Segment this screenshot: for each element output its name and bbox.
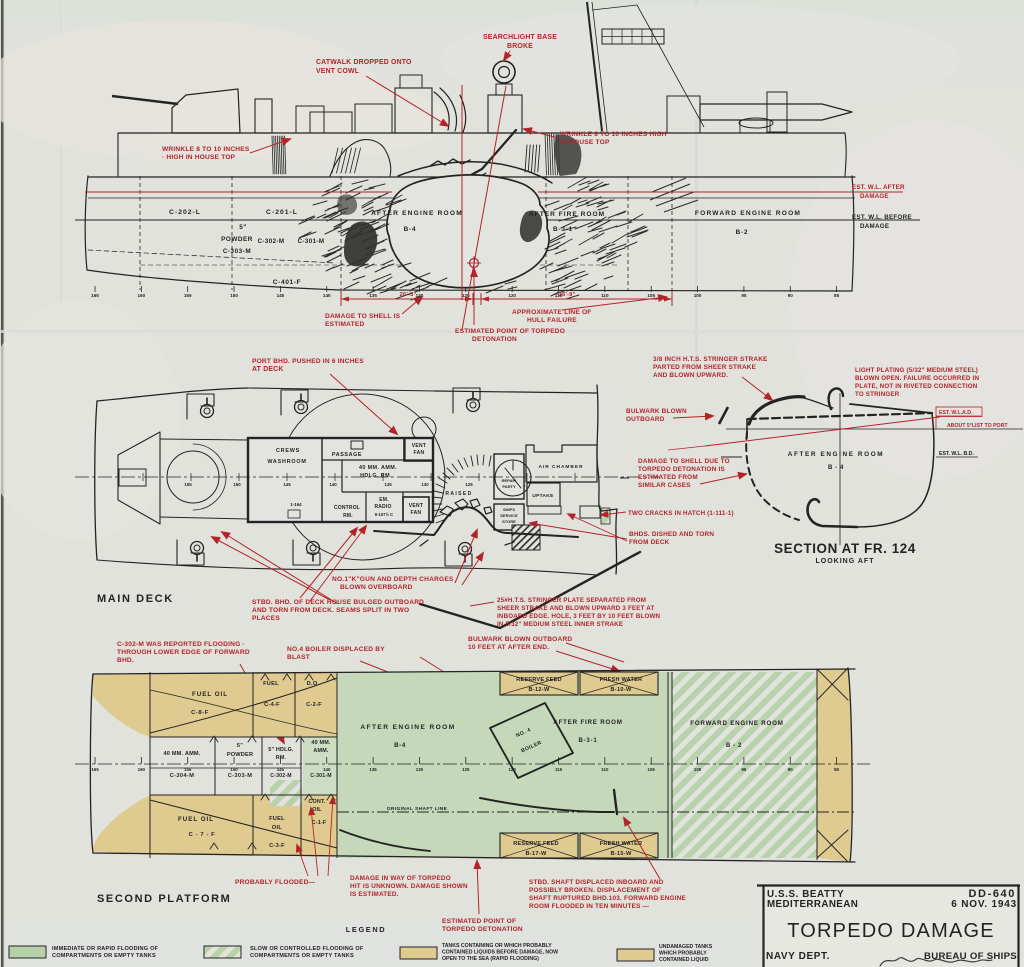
svg-text:NO.4 BOILER DISPLACED BY: NO.4 BOILER DISPLACED BY: [287, 646, 385, 653]
svg-text:120: 120: [508, 293, 516, 298]
svg-text:RM.: RM.: [343, 513, 353, 519]
svg-text:AND TORN FROM DECK. SEAMS SPLI: AND TORN FROM DECK. SEAMS SPLIT IN TWO: [252, 607, 409, 614]
svg-text:PLACES: PLACES: [252, 615, 280, 622]
svg-text:FUEL OIL: FUEL OIL: [192, 691, 228, 698]
svg-text:135: 135: [369, 767, 377, 772]
svg-text:ABOUT 5°LIST TO PORT: ABOUT 5°LIST TO PORT: [947, 423, 1008, 429]
svg-text:SLOW OR CONTROLLED FLOODING OF: SLOW OR CONTROLLED FLOODING OF: [250, 946, 364, 952]
svg-text:POWDER: POWDER: [227, 752, 253, 758]
svg-text:VENT: VENT: [412, 443, 427, 449]
svg-text:ROOM FLOODED IN TEN MINUTES —: ROOM FLOODED IN TEN MINUTES —: [529, 903, 650, 910]
svg-text:130: 130: [416, 767, 424, 772]
svg-text:PROBABLY FLOODED—: PROBABLY FLOODED—: [235, 879, 316, 886]
svg-text:B - 4: B - 4: [828, 465, 844, 471]
svg-text:REPAIR: REPAIR: [502, 478, 517, 483]
svg-text:125: 125: [462, 767, 470, 772]
svg-text:105: 105: [647, 293, 655, 298]
svg-text:IS ESTIMATED.: IS ESTIMATED.: [350, 891, 399, 898]
svg-text:POWDER: POWDER: [221, 236, 253, 243]
svg-text:TO STRINGER: TO STRINGER: [855, 391, 900, 398]
svg-text:RESERVE FEED: RESERVE FEED: [513, 841, 559, 847]
svg-text:B-4: B-4: [394, 742, 406, 749]
svg-text:SEARCHLIGHT BASE: SEARCHLIGHT BASE: [483, 34, 557, 41]
svg-text:BHDS. DISHED AND TORN: BHDS. DISHED AND TORN: [629, 531, 714, 538]
svg-text:85: 85: [834, 767, 839, 772]
svg-text:STBD. BHD. OF DECK HOUSE BULGE: STBD. BHD. OF DECK HOUSE BULGED OUTBOARD: [252, 599, 424, 606]
svg-text:165: 165: [91, 767, 99, 772]
svg-text:145: 145: [283, 482, 291, 487]
svg-text:IN HOUSE TOP: IN HOUSE TOP: [560, 139, 610, 146]
svg-text:FRESH WATER: FRESH WATER: [600, 841, 643, 847]
svg-text:SERVICE: SERVICE: [500, 513, 518, 518]
svg-text:135: 135: [369, 293, 377, 298]
svg-text:AFTER FIRE ROOM: AFTER FIRE ROOM: [529, 211, 605, 218]
svg-text:90: 90: [788, 767, 793, 772]
svg-text:DAMAGE TO SHELL DUE TO: DAMAGE TO SHELL DUE TO: [638, 458, 730, 465]
svg-text:ORIGINAL SHAFT LINE: ORIGINAL SHAFT LINE: [387, 806, 448, 812]
svg-text:FORWARD ENGINE ROOM: FORWARD ENGINE ROOM: [695, 210, 801, 217]
svg-text:FUEL OIL: FUEL OIL: [178, 816, 214, 823]
svg-text:115: 115: [555, 767, 563, 772]
svg-text:C-303-M: C-303-M: [223, 248, 251, 255]
svg-text:B-17-W: B-17-W: [525, 851, 546, 857]
svg-text:BULWARK BLOWN: BULWARK BLOWN: [626, 408, 687, 415]
svg-text:SECOND PLATFORM: SECOND PLATFORM: [97, 893, 231, 905]
svg-text:155: 155: [184, 767, 192, 772]
svg-text:OPEN TO THE SEA (RAPID FLOODIN: OPEN TO THE SEA (RAPID FLOODING): [442, 956, 539, 962]
svg-text:WHICH PROBABLY: WHICH PROBABLY: [659, 951, 707, 957]
svg-text:NAVY DEPT.: NAVY DEPT.: [766, 951, 830, 962]
svg-text:95: 95: [741, 767, 746, 772]
svg-text:5" HDLG.: 5" HDLG.: [268, 747, 294, 753]
svg-text:105: 105: [648, 767, 656, 772]
svg-text:DAMAGE TO SHELL IS: DAMAGE TO SHELL IS: [325, 313, 401, 320]
svg-text:AFTER FIRE ROOM: AFTER FIRE ROOM: [553, 719, 622, 726]
svg-text:1-164: 1-164: [290, 502, 302, 507]
svg-text:FROM DECK: FROM DECK: [629, 539, 670, 546]
svg-text:3/8 INCH H.T.S. STRINGER STRAK: 3/8 INCH H.T.S. STRINGER STRAKE: [653, 356, 768, 363]
svg-text:WASHROOM: WASHROOM: [267, 459, 306, 465]
svg-text:BHD.: BHD.: [117, 657, 134, 664]
svg-text:PLATE, NOT IN RIVETED CONNECTI: PLATE, NOT IN RIVETED CONNECTION: [855, 383, 978, 390]
svg-text:10 FEET AT AFTER END.: 10 FEET AT AFTER END.: [468, 644, 549, 651]
svg-text:WRINKLE 8 TO 10 INCHES: WRINKLE 8 TO 10 INCHES: [162, 146, 250, 153]
svg-text:PASSAGE: PASSAGE: [332, 452, 362, 458]
svg-text:CONT.: CONT.: [308, 799, 325, 805]
svg-text:CONTAINED LIQUIDS BEFORE DAMAG: CONTAINED LIQUIDS BEFORE DAMAGE, NOW: [442, 950, 558, 956]
svg-text:VENT COWL: VENT COWL: [316, 68, 359, 75]
svg-text:BUREAU OF SHIPS: BUREAU OF SHIPS: [924, 951, 1017, 962]
svg-text:SHIPS: SHIPS: [503, 507, 515, 512]
svg-text:BLOWN OVERBOARD: BLOWN OVERBOARD: [340, 584, 413, 591]
svg-text:C-301-M: C-301-M: [310, 773, 332, 779]
svg-text:PORT BHD. PUSHED IN 6 INCHES: PORT BHD. PUSHED IN 6 INCHES: [252, 358, 364, 365]
svg-text:OUTBOARD: OUTBOARD: [626, 416, 665, 423]
svg-text:BLAST: BLAST: [287, 654, 310, 661]
svg-text:5": 5": [237, 743, 243, 749]
svg-text:BLOWN OPEN. FAILURE OCCURRED I: BLOWN OPEN. FAILURE OCCURRED IN: [855, 375, 979, 382]
svg-text:SIMILAR CASES: SIMILAR CASES: [638, 482, 691, 489]
svg-text:RESERVE FEED: RESERVE FEED: [516, 677, 562, 683]
svg-text:HDLG. RM.: HDLG. RM.: [360, 473, 392, 479]
svg-text:C-302-M: C-302-M: [258, 238, 285, 245]
svg-text:DAMAGE: DAMAGE: [860, 193, 889, 200]
svg-text:155: 155: [184, 293, 192, 298]
svg-text:DETONATION: DETONATION: [472, 336, 517, 343]
svg-text:155: 155: [184, 482, 192, 487]
svg-text:TORPEDO DETONATION: TORPEDO DETONATION: [442, 926, 523, 933]
svg-text:EST. W.L. B.D.: EST. W.L. B.D.: [939, 451, 974, 457]
svg-text:STORE: STORE: [502, 519, 516, 524]
svg-text:9-107½ C: 9-107½ C: [375, 512, 393, 517]
svg-text:TANKS CONTAINING OR WHICH PROB: TANKS CONTAINING OR WHICH PROBABLY: [442, 943, 552, 949]
svg-text:C-302-M: C-302-M: [270, 773, 292, 779]
svg-text:AMM.: AMM.: [313, 748, 328, 754]
svg-text:150: 150: [230, 293, 238, 298]
svg-text:100: 100: [694, 293, 702, 298]
svg-text:UNDAMAGED TANKS: UNDAMAGED TANKS: [659, 944, 713, 950]
svg-text:B-12-W: B-12-W: [528, 687, 549, 693]
svg-text:BROKE: BROKE: [507, 43, 533, 50]
svg-text:RAISED: RAISED: [445, 491, 472, 497]
svg-text:PARTY: PARTY: [502, 484, 516, 489]
svg-text:LOOKING AFT: LOOKING AFT: [816, 558, 875, 565]
svg-text:C-202-L: C-202-L: [169, 209, 201, 216]
svg-text:EM.: EM.: [379, 497, 389, 503]
svg-text:TWO CRACKS IN HATCH (1-111-1): TWO CRACKS IN HATCH (1-111-1): [628, 510, 734, 517]
svg-text:AT DECK: AT DECK: [252, 366, 284, 373]
svg-text:INBOARD EDGE. HOLE, 3 FEET BY: INBOARD EDGE. HOLE, 3 FEET BY 10 FEET BL…: [497, 613, 661, 620]
svg-text:135: 135: [384, 482, 392, 487]
svg-text:145: 145: [277, 293, 285, 298]
svg-text:BULWARK BLOWN OUTBOARD: BULWARK BLOWN OUTBOARD: [468, 636, 572, 643]
svg-text:UPTAKE: UPTAKE: [532, 493, 554, 499]
svg-text:COMPARTMENTS OR EMPTY TANKS: COMPARTMENTS OR EMPTY TANKS: [250, 953, 354, 959]
svg-text:110: 110: [601, 767, 609, 772]
svg-text:160: 160: [138, 767, 146, 772]
svg-text:· HIGH IN HOUSE TOP: · HIGH IN HOUSE TOP: [162, 154, 236, 161]
svg-text:C-303-M: C-303-M: [228, 773, 253, 779]
svg-text:COMPARTMENTS OR EMPTY TANKS: COMPARTMENTS OR EMPTY TANKS: [52, 953, 156, 959]
svg-text:95: 95: [741, 293, 747, 298]
svg-text:150: 150: [233, 482, 241, 487]
svg-text:EST. W.L. BEFORE: EST. W.L. BEFORE: [852, 214, 912, 221]
svg-text:6 NOV. 1943: 6 NOV. 1943: [951, 899, 1017, 910]
svg-text:AFTER ENGINE ROOM: AFTER ENGINE ROOM: [360, 724, 455, 731]
svg-text:130: 130: [421, 482, 429, 487]
svg-text:B-3-1: B-3-1: [578, 738, 597, 744]
svg-text:C-304-M: C-304-M: [170, 773, 195, 779]
svg-text:MAIN DECK: MAIN DECK: [97, 593, 174, 605]
svg-text:C-302-M WAS REPORTED FLOODI: C-302-M WAS REPORTED FLOODING ·: [117, 641, 245, 648]
svg-text:C-2-F: C-2-F: [306, 702, 322, 708]
svg-text:140: 140: [329, 482, 337, 487]
svg-text:110: 110: [601, 293, 609, 298]
svg-text:ESTIMATED FROM: ESTIMATED FROM: [638, 474, 698, 481]
svg-text:TORPEDO DETONATION IS: TORPEDO DETONATION IS: [638, 466, 725, 473]
svg-text:DAMAGE IN WAY OF TORPEDO: DAMAGE IN WAY OF TORPEDO: [350, 875, 451, 882]
svg-text:5": 5": [239, 224, 247, 231]
svg-text:CONTAINED LIQUID: CONTAINED LIQUID: [659, 957, 709, 963]
svg-text:B-10-W: B-10-W: [610, 687, 631, 693]
svg-text:EST. W.L. AFTER: EST. W.L. AFTER: [852, 184, 905, 191]
svg-text:AND BLOWN UPWARD.: AND BLOWN UPWARD.: [653, 372, 728, 379]
svg-text:AIR CHAMBER: AIR CHAMBER: [538, 464, 583, 470]
svg-text:B-15-W: B-15-W: [610, 851, 631, 857]
svg-text:SHEER STRAKE AND BLOWN UPWARD: SHEER STRAKE AND BLOWN UPWARD 3 FEET AT: [497, 605, 654, 612]
svg-text:B-2: B-2: [736, 229, 749, 236]
svg-text:40 MM. AMM.: 40 MM. AMM.: [359, 465, 397, 471]
svg-text:AFTER ENGINE ROOM: AFTER ENGINE ROOM: [788, 451, 884, 458]
svg-text:ESTIMATED POINT OF: ESTIMATED POINT OF: [442, 918, 516, 925]
svg-text:AFTER ENGINE ROOM: AFTER ENGINE ROOM: [371, 210, 463, 217]
svg-text:LIGHT PLATING (5/32" MEDIUM ST: LIGHT PLATING (5/32" MEDIUM STEEL): [855, 367, 978, 374]
svg-text:NO.1"K"GUN AND DEPTH CHARGES: NO.1"K"GUN AND DEPTH CHARGES: [332, 576, 454, 583]
svg-text:140: 140: [323, 767, 331, 772]
svg-text:C-401-F: C-401-F: [273, 279, 301, 286]
svg-text:FUEL: FUEL: [269, 816, 285, 822]
svg-text:SHAFT RUPTURED BHD.103. FORWAR: SHAFT RUPTURED BHD.103. FORWARD ENGINE: [529, 895, 687, 902]
svg-text:C-1-F: C-1-F: [312, 820, 327, 826]
svg-text:FRESH WATER: FRESH WATER: [600, 677, 643, 683]
svg-text:FORWARD ENGINE ROOM: FORWARD ENGINE ROOM: [690, 720, 783, 727]
svg-text:VENT: VENT: [409, 503, 424, 509]
svg-text:WRINKLE 8 TO 10 INCHES HIGH: WRINKLE 8 TO 10 INCHES HIGH: [560, 131, 667, 138]
svg-text:TORPEDO DAMAGE: TORPEDO DAMAGE: [787, 920, 995, 942]
svg-text:26'-3": 26'-3": [400, 292, 417, 298]
svg-text:160: 160: [138, 293, 146, 298]
svg-text:B-4: B-4: [404, 226, 417, 233]
svg-text:C - 7 - F: C - 7 - F: [189, 832, 216, 838]
svg-text:THROUGH LOWER EDGE OF FORWARD: THROUGH LOWER EDGE OF FORWARD: [117, 649, 250, 656]
svg-text:ESTIMATED: ESTIMATED: [325, 321, 364, 328]
svg-text:FUEL: FUEL: [263, 681, 279, 687]
svg-text:MEDITERRANEAN: MEDITERRANEAN: [767, 899, 858, 910]
svg-text:C-4-F: C-4-F: [264, 702, 280, 708]
svg-text:40 MM. AMM.: 40 MM. AMM.: [163, 751, 200, 757]
svg-text:C-8-F: C-8-F: [191, 710, 209, 716]
svg-text:EST. W.L.A.D.: EST. W.L.A.D.: [939, 410, 973, 416]
svg-text:B-3-1: B-3-1: [553, 226, 573, 233]
svg-text:25#H.T.S. STRINGER PLATE SEPAR: 25#H.T.S. STRINGER PLATE SEPARATED FROM: [497, 597, 646, 604]
svg-text:RADIO: RADIO: [374, 504, 391, 510]
svg-text:FAN: FAN: [411, 510, 422, 516]
svg-text:HULL FAILURE: HULL FAILURE: [527, 317, 577, 324]
svg-text:HIT IS UNKNOWN. DAMAGE SHOWN: HIT IS UNKNOWN. DAMAGE SHOWN: [350, 883, 468, 890]
svg-text:PARTED FROM SHEER STRAKE: PARTED FROM SHEER STRAKE: [653, 364, 757, 371]
svg-text:100: 100: [694, 767, 702, 772]
svg-text:CONTROL: CONTROL: [334, 505, 360, 511]
svg-text:C-301-M: C-301-M: [298, 238, 325, 245]
svg-text:C-201-L: C-201-L: [266, 209, 298, 216]
svg-text:ESTIMATED POINT OF TORPEDO: ESTIMATED POINT OF TORPEDO: [455, 328, 565, 335]
svg-text:POSSIBLY BROKEN. DISPLACEMENT: POSSIBLY BROKEN. DISPLACEMENT OF: [529, 887, 661, 894]
svg-text:B - 2: B - 2: [726, 743, 742, 749]
svg-text:36'-9": 36'-9": [559, 292, 576, 298]
svg-text:90: 90: [788, 293, 794, 298]
svg-text:145: 145: [277, 767, 285, 772]
svg-text:D.O.: D.O.: [307, 681, 320, 687]
svg-text:40 MM.: 40 MM.: [311, 740, 330, 746]
svg-text:CREWS: CREWS: [276, 448, 300, 454]
svg-text:140: 140: [323, 293, 331, 298]
svg-text:IN 5/32" MEDIUM STEEL INNER ST: IN 5/32" MEDIUM STEEL INNER STRAKE: [497, 621, 623, 628]
svg-text:SECTION AT FR. 124: SECTION AT FR. 124: [774, 541, 916, 556]
svg-text:RM.: RM.: [276, 755, 287, 761]
svg-text:CATWALK DROPPED ONTO: CATWALK DROPPED ONTO: [316, 59, 412, 66]
svg-text:125: 125: [465, 482, 473, 487]
svg-text:FAN: FAN: [414, 450, 425, 456]
svg-text:STBD. SHAFT DISPLACED INBOARD: STBD. SHAFT DISPLACED INBOARD AND: [529, 879, 664, 886]
svg-text:IMMEDIATE OR RAPID FLOODING OF: IMMEDIATE OR RAPID FLOODING OF: [52, 946, 159, 952]
svg-text:APPROXIMATE LINE OF: APPROXIMATE LINE OF: [512, 309, 592, 316]
svg-text:C-3-F: C-3-F: [269, 843, 285, 849]
svg-text:85: 85: [834, 293, 840, 298]
svg-text:DAMAGE: DAMAGE: [860, 223, 889, 230]
svg-text:OIL: OIL: [272, 825, 283, 831]
svg-text:OIL: OIL: [312, 807, 322, 813]
svg-text:150: 150: [230, 767, 238, 772]
svg-text:165: 165: [91, 293, 99, 298]
svg-text:LEGEND: LEGEND: [346, 925, 386, 934]
